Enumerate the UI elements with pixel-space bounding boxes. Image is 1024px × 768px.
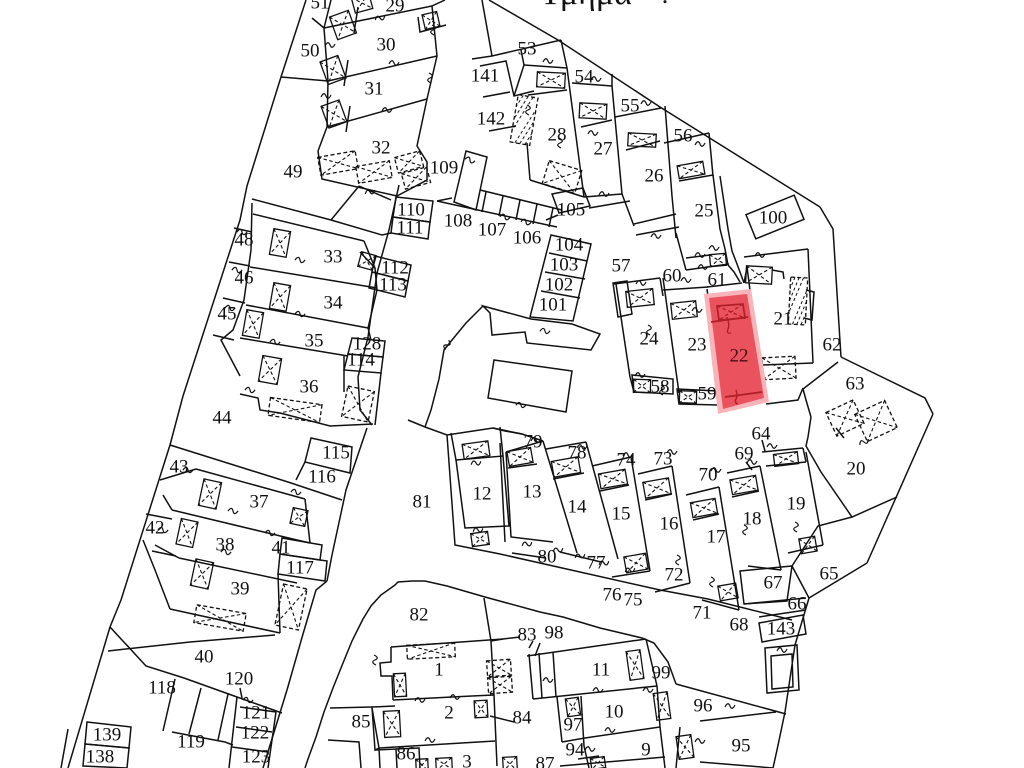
svg-text:78: 78: [568, 442, 587, 463]
svg-text:Τμήμα: Τμήμα: [540, 0, 632, 12]
svg-text:.: .: [662, 0, 669, 9]
svg-text:109: 109: [430, 157, 459, 178]
svg-text:104: 104: [555, 234, 584, 255]
svg-text:23: 23: [688, 334, 707, 355]
svg-text:96: 96: [694, 695, 713, 716]
svg-text:14: 14: [568, 496, 588, 517]
svg-text:10: 10: [605, 701, 624, 722]
svg-text:103: 103: [550, 254, 579, 275]
svg-text:62: 62: [823, 334, 842, 355]
svg-text:51: 51: [311, 0, 330, 13]
svg-text:21: 21: [774, 308, 793, 329]
svg-text:71: 71: [693, 602, 712, 623]
svg-text:46: 46: [235, 267, 254, 288]
svg-text:34: 34: [324, 292, 344, 313]
svg-text:107: 107: [478, 219, 507, 240]
svg-text:102: 102: [545, 274, 574, 295]
svg-text:123: 123: [242, 746, 271, 767]
svg-text:2: 2: [444, 702, 454, 723]
svg-text:40: 40: [195, 646, 214, 667]
svg-text:12: 12: [473, 483, 492, 504]
svg-text:63: 63: [846, 373, 865, 394]
svg-text:81: 81: [413, 491, 432, 512]
svg-text:73: 73: [654, 448, 673, 469]
svg-text:116: 116: [308, 466, 336, 487]
svg-text:50: 50: [301, 40, 320, 61]
svg-text:11: 11: [592, 659, 610, 680]
svg-text:75: 75: [624, 589, 643, 610]
svg-text:94: 94: [566, 739, 586, 760]
svg-text:48: 48: [235, 229, 254, 250]
svg-text:101: 101: [539, 294, 568, 315]
svg-text:36: 36: [300, 376, 319, 397]
svg-text:55: 55: [621, 95, 640, 116]
svg-text:58: 58: [651, 376, 670, 397]
svg-text:27: 27: [594, 138, 613, 159]
svg-text:83: 83: [518, 624, 537, 645]
svg-text:54: 54: [575, 66, 595, 87]
svg-text:111: 111: [396, 217, 423, 238]
svg-text:72: 72: [665, 564, 684, 585]
svg-text:1: 1: [434, 659, 444, 680]
svg-text:115: 115: [322, 442, 350, 463]
svg-text:56: 56: [674, 125, 693, 146]
svg-text:99: 99: [652, 662, 671, 683]
svg-text:19: 19: [787, 493, 806, 514]
svg-text:20: 20: [847, 458, 866, 479]
svg-text:24: 24: [640, 328, 660, 349]
svg-text:32: 32: [372, 137, 391, 158]
svg-text:29: 29: [386, 0, 405, 16]
svg-text:66: 66: [788, 593, 807, 614]
svg-text:122: 122: [241, 722, 270, 743]
svg-text:141: 141: [471, 65, 500, 86]
svg-text:121: 121: [242, 702, 271, 723]
svg-text:98: 98: [545, 622, 564, 643]
svg-text:61: 61: [708, 269, 727, 290]
svg-text:80: 80: [538, 546, 557, 567]
svg-text:3: 3: [462, 751, 472, 768]
svg-text:119: 119: [177, 731, 205, 752]
svg-text:26: 26: [645, 165, 664, 186]
svg-text:68: 68: [730, 614, 749, 635]
svg-text:30: 30: [377, 34, 396, 55]
svg-text:59: 59: [698, 383, 717, 404]
svg-text:77: 77: [587, 552, 606, 573]
svg-text:22: 22: [730, 345, 749, 366]
svg-text:31: 31: [365, 78, 384, 99]
svg-text:33: 33: [324, 246, 343, 267]
svg-text:38: 38: [216, 534, 235, 555]
svg-text:86: 86: [397, 743, 416, 764]
svg-text:100: 100: [759, 207, 788, 228]
svg-text:37: 37: [250, 491, 269, 512]
svg-text:69: 69: [735, 443, 754, 464]
svg-text:53: 53: [518, 38, 537, 59]
svg-text:17: 17: [707, 526, 726, 547]
svg-text:82: 82: [410, 604, 429, 625]
svg-text:65: 65: [820, 563, 839, 584]
svg-text:70: 70: [699, 464, 718, 485]
svg-text:74: 74: [617, 449, 637, 470]
svg-text:87: 87: [536, 753, 555, 768]
svg-text:143: 143: [767, 618, 796, 639]
svg-text:13: 13: [523, 481, 542, 502]
svg-text:85: 85: [352, 711, 371, 732]
svg-text:43: 43: [170, 456, 189, 477]
svg-text:139: 139: [93, 724, 122, 745]
svg-text:67: 67: [764, 572, 783, 593]
svg-text:106: 106: [513, 227, 542, 248]
svg-text:15: 15: [612, 503, 631, 524]
svg-text:42: 42: [146, 517, 165, 538]
svg-text:138: 138: [86, 746, 115, 767]
svg-text:44: 44: [213, 407, 233, 428]
svg-text:9: 9: [641, 739, 651, 760]
svg-text:84: 84: [513, 707, 533, 728]
svg-text:28: 28: [548, 124, 567, 145]
svg-text:120: 120: [225, 668, 254, 689]
svg-text:18: 18: [743, 508, 762, 529]
svg-text:35: 35: [305, 330, 324, 351]
svg-text:142: 142: [477, 108, 506, 129]
svg-text:25: 25: [695, 200, 714, 221]
svg-text:108: 108: [444, 210, 473, 231]
svg-text:95: 95: [732, 735, 751, 756]
svg-text:16: 16: [660, 513, 679, 534]
svg-text:76: 76: [603, 584, 622, 605]
svg-text:79: 79: [524, 431, 543, 452]
svg-text:113: 113: [379, 274, 407, 295]
svg-text:41: 41: [272, 537, 291, 558]
svg-text:105: 105: [557, 199, 586, 220]
svg-text:60: 60: [663, 265, 682, 286]
svg-text:64: 64: [752, 423, 772, 444]
svg-text:97: 97: [564, 714, 583, 735]
svg-text:117: 117: [286, 557, 314, 578]
svg-text:49: 49: [284, 161, 303, 182]
svg-text:114: 114: [347, 349, 375, 370]
svg-text:118: 118: [148, 677, 176, 698]
svg-text:45: 45: [218, 303, 237, 324]
svg-text:57: 57: [612, 255, 631, 276]
svg-text:39: 39: [231, 578, 250, 599]
